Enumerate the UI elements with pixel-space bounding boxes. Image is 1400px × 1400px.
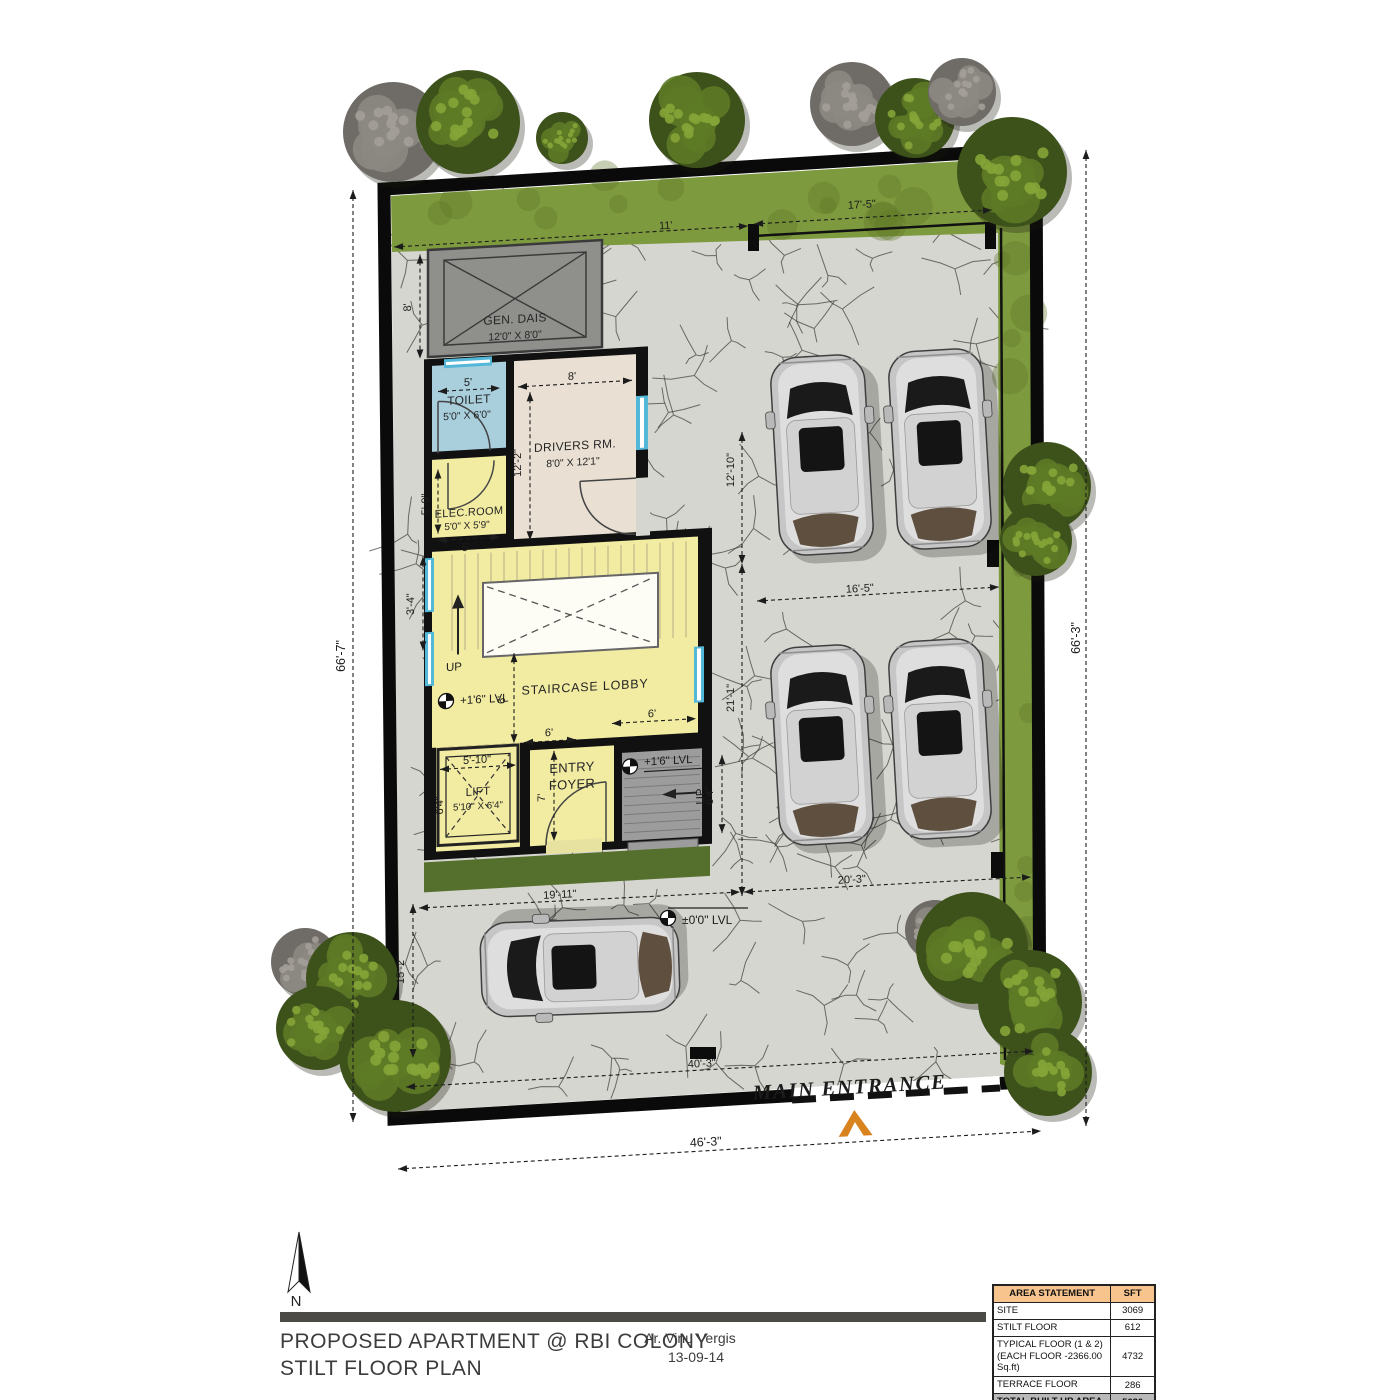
car (479, 903, 690, 1024)
dimension-label-drivers_height: 12'-2" (512, 448, 524, 477)
dimension-label-top_right_seg: 17'-5" (847, 198, 876, 212)
dimension-label-parking_gap: 16'-5" (845, 582, 874, 596)
area-table-row: SITE3069 (994, 1302, 1154, 1319)
dimension-label-stair_h: 6' (648, 708, 656, 720)
dimension-label-elec_height: 5'-9" (420, 493, 432, 516)
level-symbol-icon (661, 911, 676, 926)
drawing-date: 13-09-14 (652, 1349, 740, 1365)
level-symbol-icon (439, 693, 454, 709)
area-table-row: TOTAL BUILT-UP AREA5630 (994, 1393, 1154, 1400)
grass-blob (609, 195, 628, 214)
dimension-label-drivers_width: 8' (568, 371, 576, 383)
stair-landing (483, 573, 658, 657)
tree-green (649, 72, 750, 174)
entry-foyer-label-2: FOYER (549, 775, 595, 793)
lift-label: LIFT (466, 786, 491, 799)
area-statement-table: AREA STATEMENTSFTSITE3069STILT FLOOR612T… (992, 1284, 1156, 1400)
dimension-label-top_left_seg: 11' (659, 220, 673, 233)
car (880, 637, 1006, 850)
car (762, 353, 888, 566)
area-table-header: AREA STATEMENTSFT (994, 1286, 1154, 1302)
dimension-label-stair_v: 6' (496, 695, 508, 704)
dimension-label-site_bottom: 46'-3" (689, 1134, 722, 1150)
north-label: N (291, 1293, 302, 1310)
area-table-row: TERRACE FLOOR286 (994, 1376, 1154, 1393)
grass-blob (1014, 881, 1034, 901)
car (762, 643, 888, 856)
dimension-label-paving_lower: 21'-1" (725, 684, 737, 712)
area-table-row: STILT FLOOR612 (994, 1319, 1154, 1336)
title-divider-bar (280, 1312, 986, 1322)
dimension-lift_side: 6'4" (434, 796, 446, 815)
up-stair-label: UP (446, 661, 462, 674)
floor-plan-page: GEN. DAIS 12'0" X 8'0" (0, 0, 1400, 1400)
grass-blob (992, 358, 1028, 394)
dimension-label-bottom_right_seg: 20'-3" (838, 873, 867, 886)
area-table-header-value: SFT (1111, 1286, 1154, 1302)
level-symbol-icon (623, 759, 638, 775)
dimension-label-entrance_width: 40'-3" (687, 1057, 716, 1071)
dimension-label-paving_upper: 12'-10" (725, 453, 737, 487)
area-table-row-name: STILT FLOOR (994, 1320, 1111, 1336)
area-table-row-name: TERRACE FLOOR (994, 1377, 1111, 1393)
area-table-row-value: 4732 (1111, 1337, 1154, 1377)
grass-blob (878, 175, 901, 198)
dimension-label-site_right: 66'-3" (1069, 622, 1083, 654)
tree-green (1004, 1028, 1097, 1122)
main-entrance: MAIN ENTRANCE (751, 1069, 1000, 1136)
area-table-row-name: TYPICAL FLOOR (1 & 2) (EACH FLOOR -2366.… (994, 1337, 1111, 1377)
area-table-row: TYPICAL FLOOR (1 & 2) (EACH FLOOR -2366.… (994, 1336, 1154, 1377)
toilet-label: TOILET (447, 391, 491, 408)
level-zero-label: ±0'0" LVL (682, 913, 733, 927)
drivers-door-gap (636, 477, 650, 536)
dimension-label-lift_w: 5'-10" (463, 753, 491, 767)
area-table-header-name: AREA STATEMENT (994, 1286, 1111, 1302)
dimension-label-toilet_width: 5' (464, 377, 472, 389)
entry-foyer-label-1: ENTRY (549, 759, 594, 777)
grass-blob (894, 187, 933, 226)
tree-green (536, 112, 593, 170)
car (880, 347, 1006, 560)
dimension-label-dais_height: 8' (402, 303, 414, 312)
floor-plan-canvas: GEN. DAIS 12'0" X 8'0" (0, 0, 1400, 1400)
area-table-row-value: 3069 (1111, 1303, 1154, 1319)
dimension-label-site_left: 66'-7" (334, 640, 348, 672)
dimension-label-window_seg: 3'-4" (405, 593, 417, 616)
dimension-label-foyer_w: 6' (545, 727, 553, 739)
dimension-label-steps_h: 6'4" (704, 786, 716, 805)
area-table-row-value: 286 (1111, 1377, 1154, 1393)
room-toilet (432, 362, 506, 452)
grass-blob (820, 197, 837, 214)
area-table-row-name: TOTAL BUILT-UP AREA (994, 1394, 1111, 1400)
dimension-label-lift_side: 6'4" (434, 796, 446, 815)
grass-blob (517, 188, 540, 211)
area-table-row-name: SITE (994, 1303, 1111, 1319)
area-table-row-value: 5630 (1111, 1394, 1154, 1400)
architect-name: Ar. Vinu Vergis (640, 1330, 740, 1346)
room-gen-dais: GEN. DAIS 12'0" X 8'0" (428, 240, 602, 357)
area-table-row-value: 612 (1111, 1320, 1154, 1336)
dimension-label-elec_width: 5' (462, 542, 470, 554)
dimension-label-bottom_left_seg: 19'-11" (543, 888, 577, 902)
entrance-arrow-icon (837, 1109, 872, 1137)
dimension-label-foyer_h: 7' (536, 793, 548, 802)
project-title: PROPOSED APARTMENT @ RBI COLONY (280, 1330, 990, 1354)
title-block: PROPOSED APARTMENT @ RBI COLONY STILT FL… (280, 1312, 990, 1381)
dimension-site_bottom: 46'-3" (398, 1128, 1041, 1172)
grass-blob (534, 206, 557, 229)
north-arrow-icon: N (288, 1232, 310, 1310)
grass-blob (1002, 329, 1020, 347)
drawing-title: STILT FLOOR PLAN (280, 1357, 990, 1381)
dimension-label-drive_left: 15'-2" (395, 956, 407, 984)
